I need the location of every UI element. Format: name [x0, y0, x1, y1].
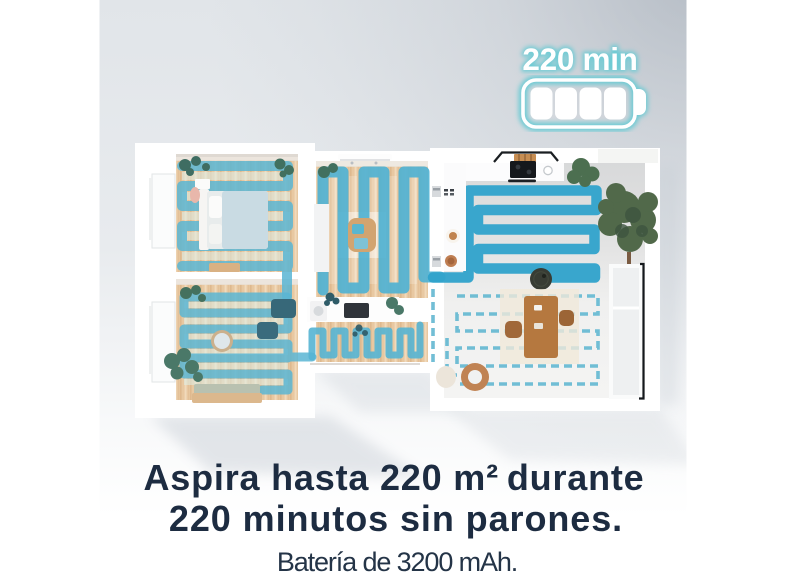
svg-text:220 minutos sin parones.: 220 minutos sin parones.: [169, 498, 623, 539]
svg-text:Aspira hasta 220 m² durante: Aspira hasta 220 m² durante: [144, 457, 645, 498]
svg-text:220 min: 220 min: [522, 41, 637, 77]
svg-text:Batería de 3200 mAh.: Batería de 3200 mAh.: [277, 547, 517, 577]
